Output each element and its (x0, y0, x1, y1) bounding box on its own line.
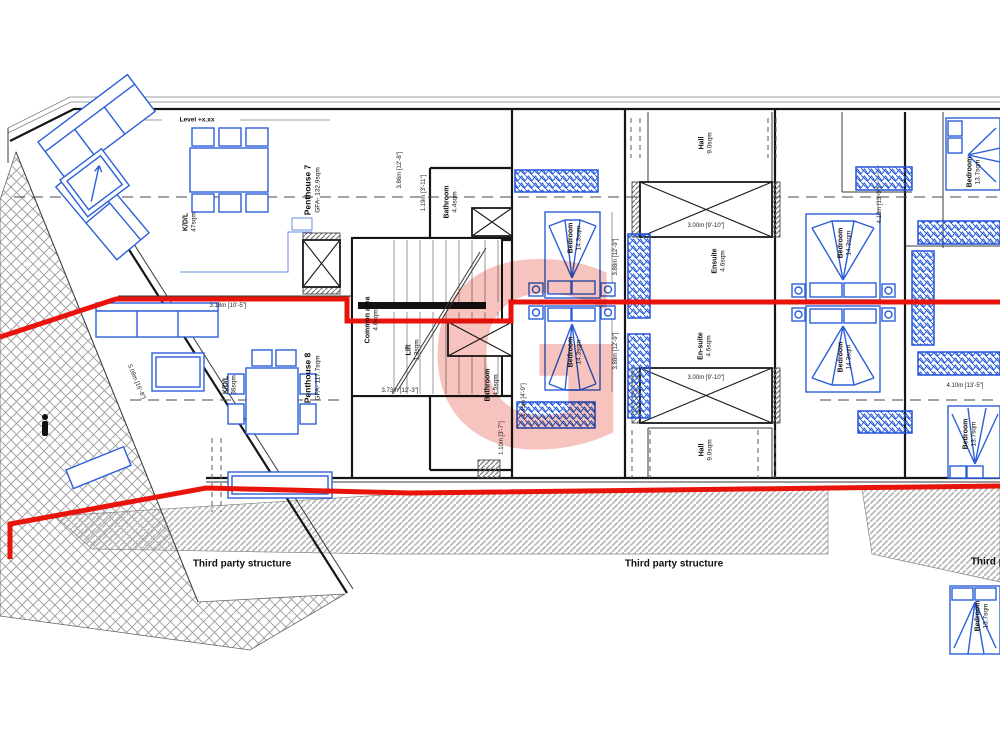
site-boundary (8, 97, 1000, 163)
room-label-ensuite-top: Ensuite4.6sqm (712, 248, 727, 273)
room-label-hall-bottom: Hall9.0sqm (699, 439, 714, 460)
penthouse7-name: Penthouse 7 (303, 165, 313, 216)
dining-table-icon (190, 128, 268, 212)
penthouse8-gfa: GFA- 117.7sqm (315, 355, 322, 400)
dimension-label: 1.19m [3'-11"] (421, 175, 427, 212)
room-label-bedroom-4: Bedroom14.3sqm (838, 342, 853, 373)
dimension-label: 3.00m [9'-10"] (688, 375, 725, 381)
dimension-label: 3.00m [9'-10"] (688, 223, 725, 229)
room-label-bedroom-3: Bedroom14.3sqm (838, 228, 853, 259)
room-label-bedroom-7: Bedroom13.7sqm (975, 601, 990, 632)
dimension-label: 4.18m [13'-9"] (877, 187, 883, 224)
room-label-common-area: Common area4.6sqm (365, 297, 380, 344)
dimension-label: 3.18m [10'-5"] (210, 303, 247, 309)
room-label-lift: Lift1.3sqm (406, 339, 421, 360)
sofa-icon (96, 303, 218, 337)
rug-icon (152, 353, 204, 391)
penthouse8-label: Penthouse 8 GFA- 117.7sqm (304, 353, 323, 404)
kitchen-counter (180, 218, 312, 272)
room-label-bedroom-1: Bedroom14.3sqm (568, 223, 583, 254)
penthouse7-gfa: GFA- 132.9sqm (315, 167, 322, 213)
room-label-bedroom-2: Bedroom14.3sqm (568, 337, 583, 368)
shaft-left-of-stairs (303, 233, 340, 294)
third-party-note-right: Third party structure (971, 557, 1000, 568)
room-label-bathroom-p8: Bathroom4.5sqm (485, 368, 500, 401)
room-label-bedroom-5: Bedroom13.7sqm (967, 157, 982, 188)
third-party-note-center: Third party structure (625, 559, 723, 570)
dimension-label: 4.10m [13'-5"] (947, 383, 984, 389)
person-figure (42, 414, 48, 436)
level-label: Level +x.xx (180, 117, 215, 124)
dimension-label: 1.45m [4'-9"] (521, 383, 527, 417)
shaft-bathroom7 (472, 208, 512, 236)
dimension-label: 3.86m [12'-8"] (397, 152, 403, 189)
room-label-bedroom-6: Bedroom13.7sqm (963, 419, 978, 450)
dimension-label: 3.88m [12'-9"] (613, 333, 619, 370)
duct (478, 460, 500, 478)
room-label-kdl-p7: K/D/L47sqm (183, 212, 198, 232)
floor-plan-page: Level +x.xx Penthouse 7 GFA- 132.9sqm Pe… (0, 0, 1000, 750)
dimension-label: 3.88m [12'-9"] (613, 239, 619, 276)
floor-plan-drawing (0, 0, 1000, 750)
penthouse8-name: Penthouse 8 (303, 353, 313, 404)
dimension-label: 3.73m [12'-3"] (382, 388, 419, 394)
dimension-label: 1.10m [3'-7"] (499, 421, 505, 455)
room-label-bathroom-p7: Bathroom4.4sqm (444, 185, 459, 218)
third-party-note-left: Third party structure (193, 559, 291, 570)
room-label-hall-top: Hall9.0sqm (699, 132, 714, 153)
planter-icon (228, 472, 332, 498)
penthouse7-label: Penthouse 7 GFA- 132.9sqm (304, 165, 323, 216)
room-label-kdl-p8: K/D/L36sqm (223, 375, 238, 395)
room-label-ensuite-bottom: En-suite4.6sqm (698, 332, 713, 360)
